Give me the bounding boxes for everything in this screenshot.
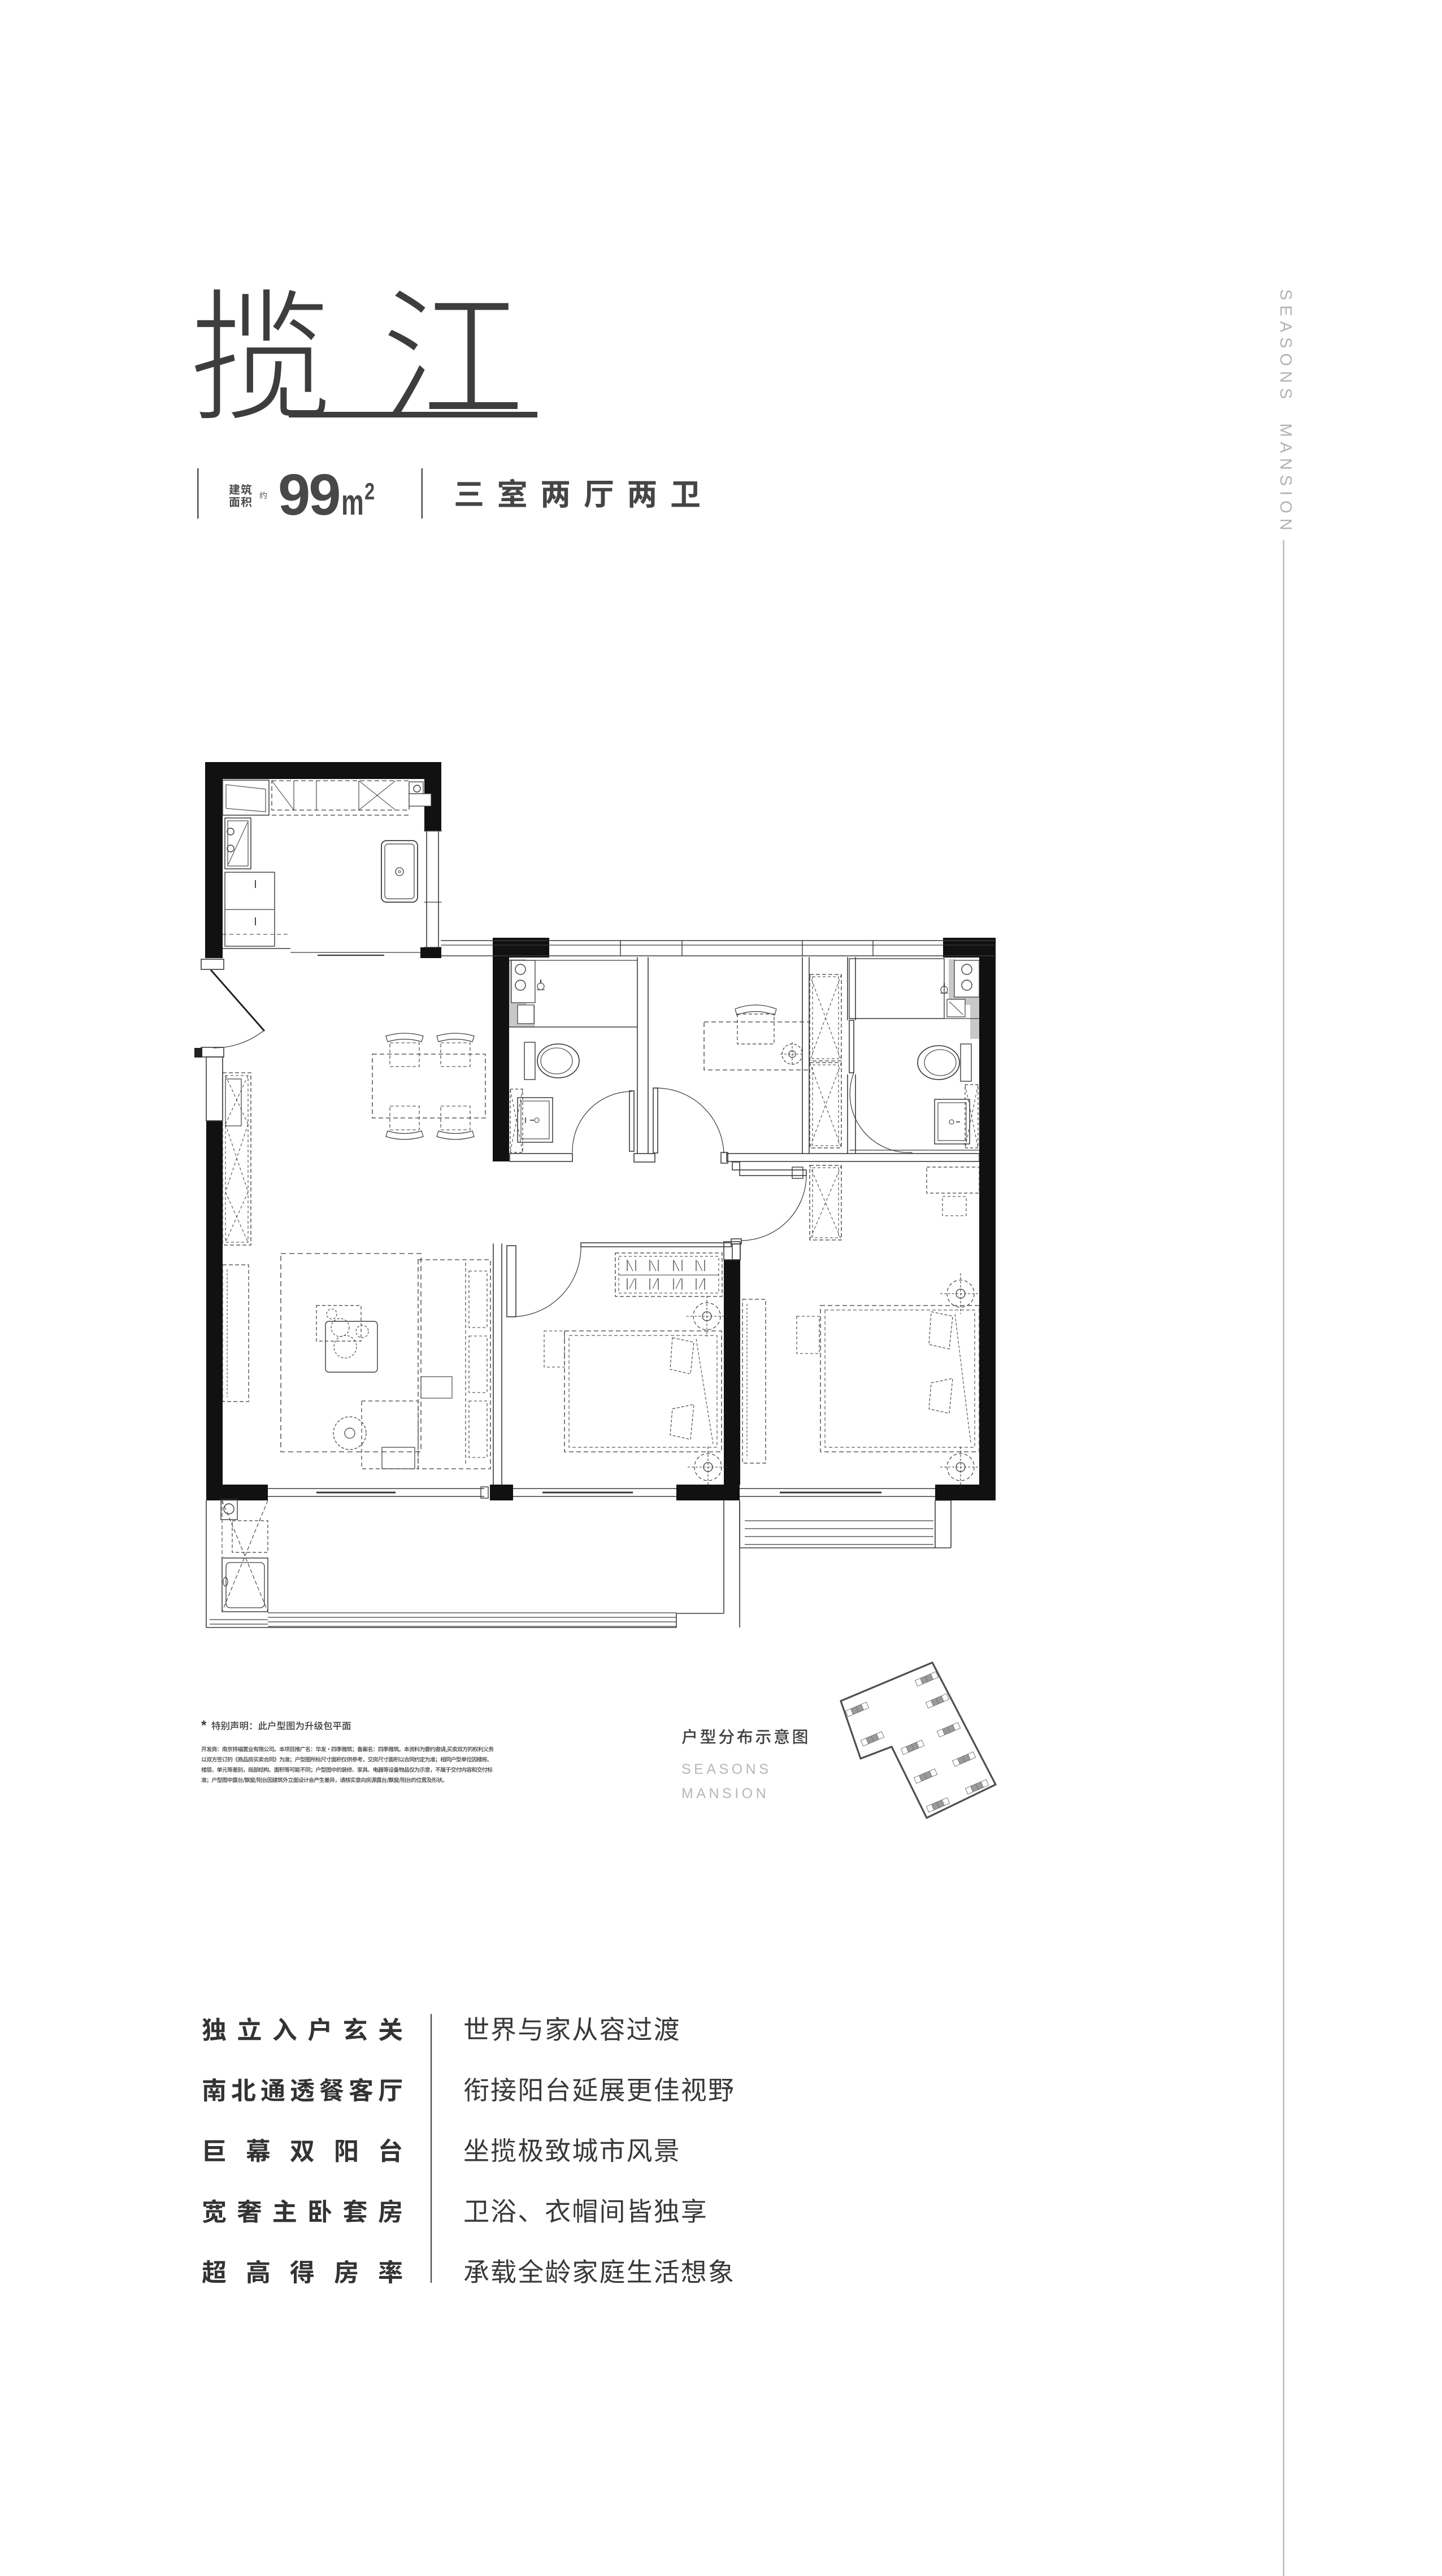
svg-text:m: m [341, 482, 364, 523]
svg-text:99: 99 [278, 462, 340, 527]
svg-text:SEASONS: SEASONS [681, 1761, 771, 1777]
svg-text:*: * [201, 1718, 207, 1733]
svg-text:2: 2 [364, 478, 375, 504]
svg-text:MANSION: MANSION [681, 1786, 769, 1802]
svg-text:SEASONS MANSION: SEASONS MANSION [1276, 289, 1295, 536]
